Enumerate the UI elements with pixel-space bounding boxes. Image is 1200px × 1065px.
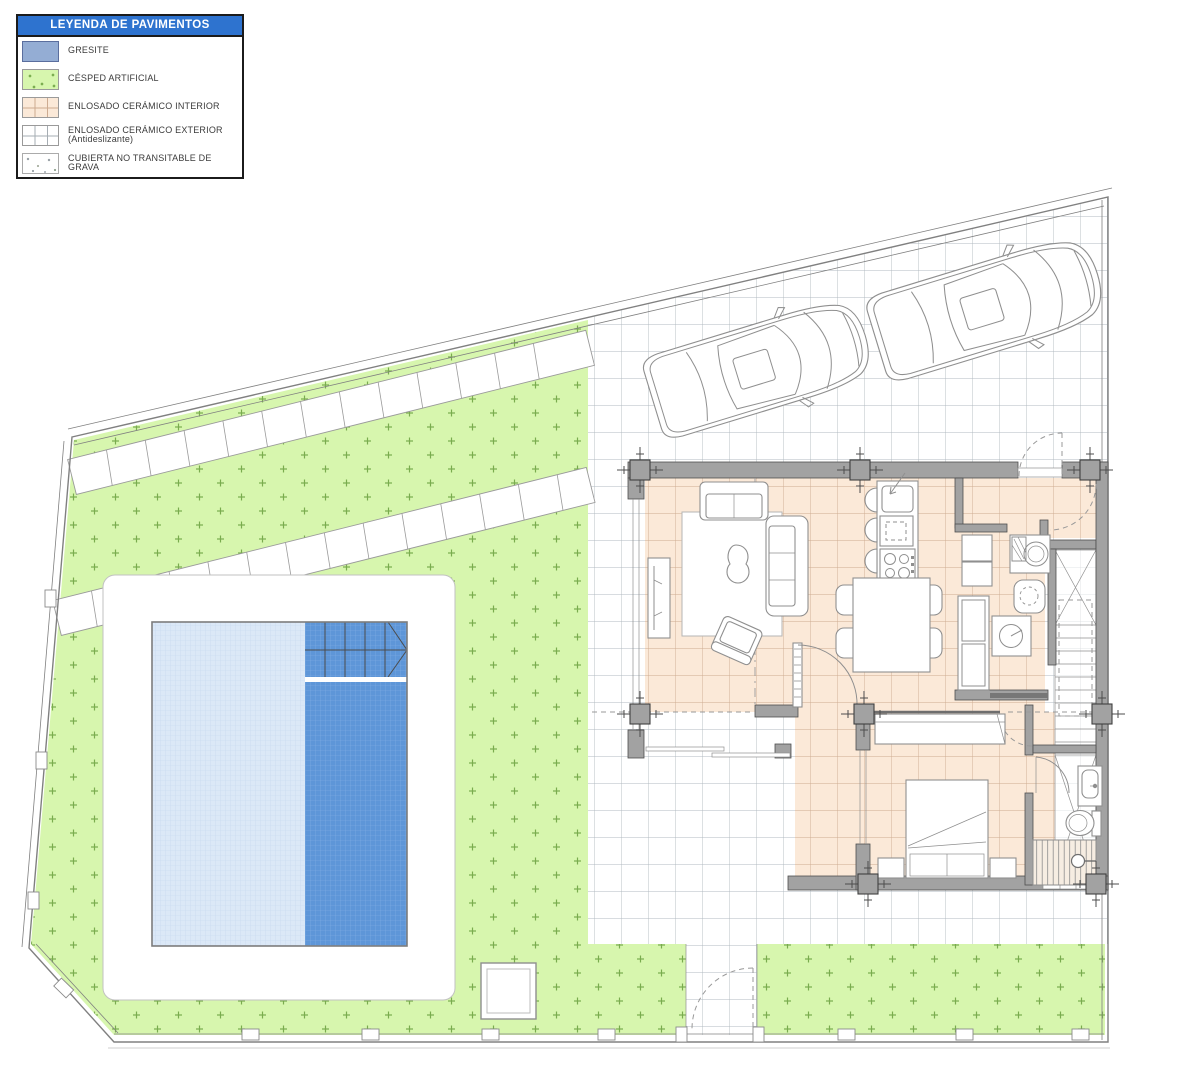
cesped-swatch-icon	[22, 69, 59, 90]
water-heater	[1014, 580, 1045, 613]
legend-item-gresite: GRESITE	[18, 37, 242, 65]
wardrobe	[875, 714, 1005, 744]
legend-title: LEYENDA DE PAVIMENTOS	[18, 16, 242, 37]
legend-item-cesped: CÉSPED ARTIFICIAL	[18, 65, 242, 93]
legend-item-label: ENLOSADO CERÁMICO INTERIOR	[68, 102, 220, 111]
legend-item-grava: CUBIERTA NO TRANSITABLE DE GRAVA	[18, 149, 242, 177]
dryer	[992, 616, 1031, 656]
outdoor-pad	[481, 963, 536, 1019]
pool-shallow	[152, 622, 305, 946]
tall-cabinet	[958, 596, 989, 690]
pavements-legend: LEYENDA DE PAVIMENTOS GRESITE CÉSPED ART…	[16, 14, 244, 179]
bed	[906, 780, 988, 878]
bar-stools	[865, 488, 877, 573]
ceramico-exterior-swatch-icon	[22, 125, 59, 146]
toilet	[1066, 811, 1101, 837]
legend-item-label: CÉSPED ARTIFICIAL	[68, 74, 159, 83]
entry-floor	[1045, 478, 1096, 538]
washing-machine	[1010, 535, 1050, 573]
ceramico-interior-swatch-icon	[22, 97, 59, 118]
gresite-swatch-icon	[22, 41, 59, 62]
sofa	[766, 516, 808, 616]
legend-item-ceramico-exterior: ENLOSADO CERÁMICO EXTERIOR (Antideslizan…	[18, 121, 242, 149]
dining-table	[853, 578, 930, 672]
nightstand-right	[990, 858, 1016, 878]
hob	[880, 549, 915, 582]
legend-item-ceramico-interior: ENLOSADO CERÁMICO INTERIOR	[18, 93, 242, 121]
bathroom-sink	[1078, 766, 1102, 806]
legend-item-label: ENLOSADO CERÁMICO EXTERIOR (Antideslizan…	[68, 126, 238, 145]
lawn-strip-right	[757, 944, 1105, 1035]
page: LEYENDA DE PAVIMENTOS GRESITE CÉSPED ART…	[0, 0, 1200, 1065]
coffee-table	[727, 545, 749, 583]
legend-item-label: CUBIERTA NO TRANSITABLE DE GRAVA	[68, 154, 238, 173]
pool-deep	[305, 622, 407, 946]
legend-item-label: GRESITE	[68, 46, 109, 55]
oven	[880, 516, 913, 546]
grava-swatch-icon	[22, 153, 59, 174]
tv-console	[648, 558, 670, 638]
nightstand-left	[878, 858, 904, 878]
pool	[152, 622, 407, 946]
loveseat	[700, 482, 768, 520]
